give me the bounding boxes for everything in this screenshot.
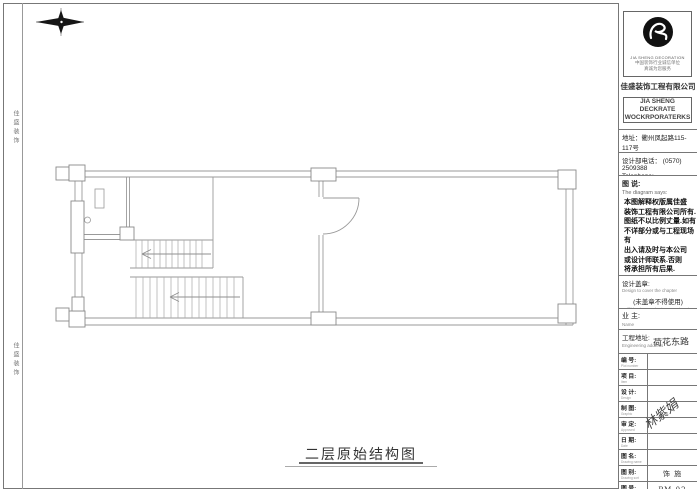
- stamp-label-cn: 设计盖章:: [619, 276, 697, 288]
- row-label-en: Drawing name: [621, 460, 642, 464]
- company-name-en-line1: JIA SHENG DECKRATE: [624, 98, 691, 114]
- row-value: [648, 450, 697, 465]
- company-name-en-box: JIA SHENG DECKRATE WOCKRPORATERKS: [623, 97, 692, 123]
- notes-section: 图 说: The diagram says: 本图解释权版属佳盛 装饰工程有限公…: [619, 176, 697, 276]
- title-underline-thin: [285, 466, 437, 467]
- revision-table: 林紫娟 编 号: Plot number 项 目: Item 设 计: Desi…: [619, 354, 697, 489]
- stamp-section: 设计盖章: Design to cover the chapter (未盖章不得…: [619, 276, 697, 309]
- notes-paragraph: 本图解释权版属佳盛 装饰工程有限公司所有. 图纸不以比例丈量.如有 不详部分或与…: [619, 198, 697, 275]
- notes-line: 不详部分或与工程现场有: [624, 227, 697, 246]
- floor-plan-canvas: [0, 0, 700, 492]
- address-section: 地址：衢州凤起路115-117号 Address Feng Qi Road No…: [619, 130, 697, 153]
- door-swing: [323, 198, 359, 234]
- company-logo-icon: [641, 15, 675, 49]
- row-label-cn: 编 号:: [621, 355, 647, 364]
- north-arrow-icon: [36, 8, 84, 36]
- row-value: [648, 434, 697, 449]
- row-label-en: Item: [621, 380, 642, 384]
- owner-label-cn: 业 主:: [619, 309, 697, 321]
- row-value: 饰 施: [648, 466, 697, 481]
- company-name-en-line2: WOCKRPORATERKS: [624, 114, 691, 122]
- notes-title-en: The diagram says:: [619, 189, 697, 198]
- room-fixtures: [85, 189, 105, 223]
- table-row: 图 号: Drawing number PM-02: [619, 482, 697, 489]
- phone-section: 设计部电话： (0570) 2509388 Telephone:: [619, 153, 697, 176]
- row-label-cn: 图 号:: [621, 483, 647, 489]
- notes-line: 或设计师联系.否则: [624, 256, 697, 266]
- row-label-en: Approved: [621, 428, 642, 432]
- row-label-en: Drawing sort: [621, 476, 642, 480]
- row-value: [648, 354, 697, 369]
- notes-title-cn: 图 说:: [619, 176, 697, 189]
- site-value: 荷花东路: [653, 334, 689, 348]
- row-value: [648, 370, 697, 385]
- row-label-en: Design: [621, 396, 642, 400]
- table-row: 图 名: Drawing name: [619, 450, 697, 466]
- owner-section: 业 主: Name: [619, 309, 697, 330]
- columns: [56, 165, 576, 327]
- stamp-label-en: Design to cover the chapter: [619, 288, 697, 293]
- notes-line: 装饰工程有限公司所有.: [624, 208, 697, 218]
- drawing-title: 二层原始结构图: [286, 444, 436, 464]
- row-label-cn: 设 计:: [621, 387, 647, 396]
- row-label-cn: 图 别:: [621, 467, 647, 476]
- notes-line: 本图解释权版属佳盛: [624, 198, 697, 208]
- logo-box: JIA SHENG DECORATION 中国装饰行业诚信单位 真诚为您服务: [623, 11, 692, 77]
- owner-label-en: Name: [619, 321, 697, 327]
- notes-line: 图纸不以比例丈量.如有: [624, 217, 697, 227]
- row-label-cn: 项 目:: [621, 371, 647, 380]
- row-label-en: Plot number: [621, 364, 642, 368]
- table-row: 设 计: Design: [619, 386, 697, 402]
- company-name-cn: 佳盛装饰工程有限公司: [619, 81, 697, 92]
- notes-line: 将承担所有后果.: [624, 265, 697, 275]
- title-underline-thick: [299, 462, 423, 464]
- stamp-note-cn: (未盖章不得使用): [619, 296, 697, 306]
- title-block: JIA SHENG DECORATION 中国装饰行业诚信单位 真诚为您服务 佳…: [618, 3, 697, 489]
- row-label-cn: 日 期:: [621, 435, 647, 444]
- address-cn: 地址：衢州凤起路115-117号: [619, 130, 697, 152]
- site-section: 工程地址: Engineering address 荷花东路: [619, 330, 697, 354]
- row-label-en: Date: [621, 444, 642, 448]
- row-value: PM-02: [648, 482, 697, 489]
- row-label-cn: 制 图:: [621, 403, 647, 412]
- table-row: 项 目: Item: [619, 370, 697, 386]
- row-label-cn: 图 名:: [621, 451, 647, 460]
- table-row: 日 期: Date: [619, 434, 697, 450]
- drawing-sheet: 佳盛装饰 佳盛装饰: [0, 0, 700, 492]
- notes-line: 出入请及时与本公司: [624, 246, 697, 256]
- stairs: [136, 240, 234, 318]
- row-label-en: Graphic: [621, 412, 642, 416]
- logo-subline-2: 真诚为您服务: [624, 66, 691, 72]
- table-row: 编 号: Plot number: [619, 354, 697, 370]
- table-row: 图 别: Drawing sort 饰 施: [619, 466, 697, 482]
- phone-cn: 设计部电话： (0570) 2509388: [619, 153, 697, 172]
- company-section: JIA SHENG DECORATION 中国装饰行业诚信单位 真诚为您服务 佳…: [619, 3, 697, 130]
